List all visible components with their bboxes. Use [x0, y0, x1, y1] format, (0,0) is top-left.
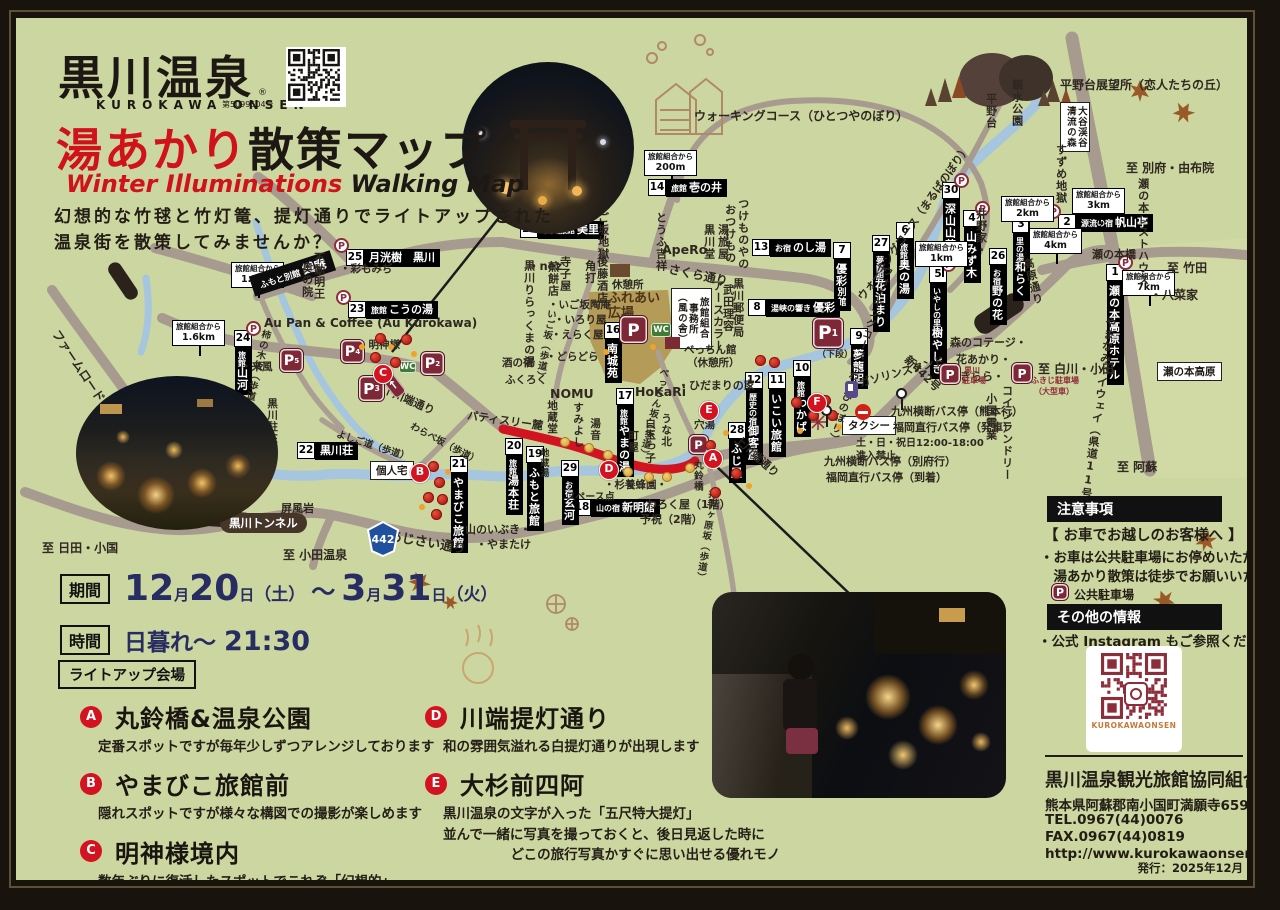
map-label: パティスリー麓: [466, 410, 543, 433]
lantern-dot: [603, 349, 609, 355]
notice-header: 注意事項: [1047, 496, 1222, 522]
divider: [1045, 755, 1243, 757]
map-label: 井野家・: [974, 208, 987, 256]
map-building-block: [610, 264, 630, 277]
notice-line-1: ・お車は公共駐車場にお停めいただけます: [1040, 546, 1280, 566]
map-label: 小国電業: [984, 393, 997, 441]
venue-name: 丸鈴橋&温泉公園: [115, 699, 312, 734]
lantern-ball-icon: [623, 467, 633, 477]
period-label: 期間: [60, 574, 110, 604]
river-lanterns-photo: [76, 376, 278, 530]
venue-desc: 隠れスポットですが様々な構図での撮影が楽しめます: [98, 804, 403, 824]
map-label: ふれあい: [608, 292, 660, 307]
time-value: 日暮れ〜 21:30: [124, 623, 310, 657]
map-label: ・やまたけ: [476, 539, 531, 552]
map-label: 至 竹田: [1167, 262, 1207, 276]
venue-desc: 定番スポットですが毎年少しずつアレンジしております: [98, 737, 403, 757]
car-visitors-header: 【 お車でお越しのお客様へ 】: [1044, 524, 1243, 545]
instagram-qr-card[interactable]: KUROKAWAONSEN: [1086, 646, 1182, 752]
distance-sign: 旅館組合から3km: [1072, 188, 1125, 214]
organization-name: 黒川温泉観光旅館協同組合: [1045, 766, 1261, 792]
lantern-dot: [836, 424, 842, 430]
fax: FAX.0967(44)0819: [1045, 829, 1185, 845]
map-sign-8[interactable]: 8湯峡の響き優彩: [748, 299, 840, 317]
map-sign-13[interactable]: 13お宿のし湯: [752, 239, 831, 257]
venue-desc: 和の雰囲気溢れる白提灯通りが出現します: [443, 737, 738, 757]
map-sign-20[interactable]: 20旅館湯本荘: [505, 438, 523, 515]
poster-canvas: P1瀬の本高原ホテルP2源流の宿帆山亭P3里の湯和らくP4山みず木P5いやしの里…: [0, 0, 1280, 910]
map-label: 平野台展望所（恋人たちの丘）: [1060, 79, 1228, 93]
parking-icon[interactable]: P: [940, 364, 960, 384]
venue-badge-E: E: [425, 773, 447, 795]
map-label: （下段）: [817, 350, 853, 360]
parking-icon[interactable]: P: [620, 316, 647, 343]
other-info-header: その他の情報: [1047, 604, 1222, 630]
lantern-dot: [419, 504, 425, 510]
address: 熊本県阿蘇郡南小国町満願寺6594-3: [1045, 794, 1273, 814]
parking-circle-icon: P: [954, 173, 969, 188]
venue-badge-D: D: [425, 706, 447, 728]
venue-badge-A: A: [80, 706, 102, 728]
map-label: 森のコテージ・: [950, 337, 1027, 350]
lantern-ball-icon: [423, 492, 434, 503]
svg-text:442: 442: [372, 533, 395, 546]
parking-icon-p5[interactable]: P5: [280, 349, 303, 372]
map-label: 穴湯: [694, 419, 715, 431]
lantern-ball-icon: [685, 463, 695, 473]
map-label: おつけもの: [723, 204, 736, 264]
map-sign-21[interactable]: 21やまびこ旅館: [450, 456, 468, 553]
map-label: ・ひだまりの家: [678, 380, 755, 393]
map-label: 瀬の本レストハウス: [1136, 178, 1149, 286]
map-label: すずめ地獄: [1054, 144, 1067, 204]
venue-badge-F: F: [425, 881, 447, 903]
venue-item-F: F大看板&バス停かやぶき屋根のバス停&竹毬のライトアップで ノスタルジックみが凄…: [403, 874, 738, 910]
map-label: ファームロード: [49, 328, 107, 405]
venue-marker-e[interactable]: E: [699, 401, 719, 421]
map-label: 至 小田温泉: [283, 549, 347, 563]
lantern-ball-icon: [370, 352, 381, 363]
map-label: 花あかり・: [956, 354, 1011, 367]
brand-logo-romaji: KUROKAWA ONSEN: [96, 98, 310, 112]
distance-sign: 旅館組合から2km: [1001, 196, 1054, 222]
lantern-ball-icon: [731, 468, 742, 479]
map-label: わろく屋（1階）: [646, 499, 731, 512]
lantern-ball-icon: [375, 333, 386, 344]
route-442-shield: 442: [366, 521, 400, 557]
map-label: 観水公園: [1010, 79, 1023, 127]
venue-marker-b[interactable]: B: [410, 463, 430, 483]
lantern-ball-icon: [390, 357, 401, 368]
map-label: ・彩もみぢ: [340, 263, 393, 275]
lantern-dot: [746, 483, 752, 489]
header-qr-code: [286, 47, 346, 107]
map-sign-14[interactable]: 14旅館壱の井: [648, 179, 727, 197]
map-label: 駐車場: [962, 376, 986, 385]
venue-marker-f[interactable]: F: [807, 393, 827, 413]
map-label: （大型車）: [1034, 387, 1074, 396]
map-label: 福岡直行バス停（到着）: [826, 472, 947, 485]
map-sign-26[interactable]: 26お宿野の花: [989, 248, 1007, 325]
map-label: 後藤酒店: [595, 256, 608, 304]
map-label: 奥の院: [300, 262, 313, 298]
lantern-dot: [650, 344, 656, 350]
issue-date: 発行：2025年12月: [1090, 860, 1243, 876]
map-label: 至 別府・由布院: [1126, 162, 1214, 176]
lantern-dot: [359, 344, 365, 350]
venue-name: やまびこ旅館前: [115, 766, 290, 801]
venues-column-1: A丸鈴橋&温泉公園定番スポットですが毎年少しずつアレンジしておりますBやまびこ旅…: [58, 699, 403, 910]
venue-name: 大杉前四阿: [460, 766, 585, 801]
time-row: 時間 日暮れ〜 21:30: [60, 623, 497, 657]
period-row: 期間 12月20日（土）〜3月31日（火）: [60, 568, 497, 609]
map-sign-11[interactable]: 11いこい旅館: [768, 372, 786, 457]
lantern-ball-icon: [560, 437, 570, 447]
page-subtitle: Winter Illuminations Walking Map: [66, 170, 524, 198]
lantern-ball-icon: [431, 509, 442, 520]
venue-name: 大看板&バス停: [460, 874, 632, 909]
distance-sign: 旅館組合から1km: [915, 241, 968, 267]
lantern-dot: [723, 430, 729, 436]
map-label: 山のいぶき・: [465, 524, 531, 537]
no-entry-icon: [855, 404, 871, 420]
map-label: ApeRo: [662, 243, 707, 257]
map-label: うな北: [660, 413, 672, 448]
map-label: アースカラー: [711, 280, 724, 352]
map-label: わらべ坂（歩道）: [408, 422, 480, 467]
map-label: 角打: [583, 260, 596, 284]
map-label: 地蔵湯: [538, 448, 548, 478]
map-label: 黒川堂: [702, 224, 715, 260]
map-label: 至 日田・小国: [42, 542, 118, 556]
venue-desc: 数年ぶりに復活したスポットでこれぞ「幻想的」 ご神木の小国杉に囲まれて神聖な気分…: [98, 872, 403, 910]
map-label: 煎餅店: [546, 261, 559, 297]
venue-marker-d[interactable]: D: [599, 460, 619, 480]
lightup-venues-section: ライトアップ会場 A丸鈴橋&温泉公園定番スポットですが毎年少しずつアレンジしてお…: [58, 660, 738, 910]
lantern-ball-icon: [662, 472, 672, 482]
map-label: 平野台: [984, 93, 997, 129]
map-label: やまなみハイウェイ（県道11号）: [1077, 316, 1117, 512]
map-label: 九州横断バス停（別府行）: [824, 456, 956, 469]
map-label: ・えらく屋: [551, 329, 604, 341]
wc-icon: WC: [399, 361, 416, 373]
venues-header: ライトアップ会場: [58, 660, 196, 689]
map-label: とうふ吉祥: [654, 212, 667, 272]
distance-sign: 旅館組合から1.6km: [172, 320, 225, 346]
venue-marker-c[interactable]: C: [373, 364, 393, 384]
map-label: つけものやの: [736, 198, 749, 270]
intro-text: 幻想的な竹毬と竹灯篭、提灯通りでライトアップされた温泉街を散策してみませんか？: [54, 204, 554, 257]
road-tunnel: [105, 260, 140, 303]
qr-caption: KUROKAWAONSEN: [1086, 721, 1182, 730]
map-label: 屏風岩: [281, 503, 314, 516]
map-white-box: 瀬の本高原: [1157, 362, 1222, 381]
map-label: 予祝（2階）: [640, 514, 703, 527]
notice-line-2: 湯あかり散策は徒歩でお願いいたします: [1040, 565, 1280, 585]
parking-circle-icon: P: [336, 290, 351, 305]
venue-marker-a[interactable]: A: [703, 449, 723, 469]
map-label: 湯音: [589, 418, 601, 441]
gas-station-icon: [845, 381, 858, 398]
lantern-ball-icon: [710, 487, 721, 498]
venue-item-D: D川端提灯通り和の雰囲気溢れる白提灯通りが出現します: [403, 699, 738, 757]
map-label: ・いろり屋: [554, 314, 607, 326]
map-label: 黒川りらっくまの湯: [522, 260, 535, 368]
venue-item-B: Bやまびこ旅館前隠れスポットですが様々な構図での撮影が楽しめます: [58, 766, 403, 824]
lantern-ball-icon: [791, 397, 802, 408]
lantern-balls-night-photo: [712, 592, 1006, 798]
bus-stop-icon: [896, 388, 907, 399]
map-label: Au Pan & Coffee (Au Kurokawa): [264, 317, 477, 331]
lantern-ball-icon: [437, 494, 448, 505]
distance-sign: 旅館組合から4km: [1029, 228, 1082, 254]
phone: TEL.0967(44)0076: [1045, 812, 1183, 828]
time-label: 時間: [60, 625, 110, 655]
instagram-icon: [1124, 682, 1148, 706]
lantern-ball-icon: [584, 443, 594, 453]
map-label: ・どらどら: [546, 351, 599, 363]
map-label: スペース点: [566, 492, 615, 504]
lantern-ball-icon: [755, 355, 766, 366]
parking-icon-p1[interactable]: P1: [813, 318, 843, 348]
schedule-section: 期間 12月20日（土）〜3月31日（火） 時間 日暮れ〜 21:30: [60, 568, 497, 671]
lantern-dot: [445, 469, 451, 475]
map-label: コインランドリー: [1000, 385, 1013, 481]
lantern-ball-icon: [434, 477, 445, 488]
venue-item-E: E大杉前四阿黒川温泉の文字が入った「五尺特大提灯」 並んで一緒に写真を撮っておく…: [403, 766, 738, 865]
parking-icon-p2[interactable]: P2: [421, 352, 444, 375]
venue-item-A: A丸鈴橋&温泉公園定番スポットですが毎年少しずつアレンジしております: [58, 699, 403, 757]
registered-mark: ®: [258, 88, 267, 98]
map-label: 地蔵堂: [546, 400, 558, 435]
distance-sign: 旅館組合から200m: [644, 150, 697, 176]
venue-desc: 黒川温泉の文字が入った「五尺特大提灯」 並んで一緒に写真を撮っておくと、後日見返…: [443, 804, 738, 865]
parking-icon[interactable]: P: [1012, 363, 1032, 383]
map-label: 瀬の本橋: [1092, 249, 1136, 262]
venue-item-C: C明神様境内数年ぶりに復活したスポットでこれぞ「幻想的」 ご神木の小国杉に囲まれ…: [58, 834, 403, 910]
lantern-ball-icon: [401, 334, 412, 345]
map-label: 至 阿蘇: [1117, 461, 1157, 475]
lantern-dot: [797, 428, 803, 434]
map-label: （休憩所）: [687, 357, 740, 369]
venue-name: 川端提灯通り: [460, 699, 610, 734]
map-building-block: [665, 337, 680, 349]
map-label: ・八菜家: [1150, 289, 1198, 303]
period-value: 12月20日（土）〜3月31日（火）: [124, 568, 497, 609]
map-label: 黒川: [964, 366, 980, 375]
wc-icon: WC: [651, 323, 671, 337]
lantern-ball-icon: [769, 357, 780, 368]
lantern-ball-icon: [603, 450, 613, 460]
lantern-dot: [388, 344, 394, 350]
map-label: 休憩所: [612, 279, 644, 291]
map-label: ふきじ駐車場: [1031, 376, 1079, 385]
trademark-number: 第5099504号: [222, 99, 274, 110]
public-parking-label: 公共駐車場: [1074, 586, 1134, 603]
map-label: ・杉養蜂園・: [604, 479, 667, 491]
map-label: すみよし: [572, 402, 584, 448]
map-label: 土・日・祝日12:00-18:00: [856, 438, 984, 450]
map-label: ウォーキングコース（ひとつやのぼり）: [694, 110, 908, 124]
lantern-dot: [411, 351, 417, 357]
public-parking-icon: P: [1052, 584, 1068, 600]
venue-name: 明神様境内: [115, 834, 240, 869]
venues-column-2: D川端提灯通り和の雰囲気溢れる白提灯通りが出現しますE大杉前四阿黒川温泉の文字が…: [403, 699, 738, 910]
map-white-box: タクシー: [842, 416, 896, 435]
map-white-box: 個人宅: [370, 461, 414, 480]
venue-badge-B: B: [80, 773, 102, 795]
lantern-ball-icon: [644, 472, 654, 482]
venue-badge-C: C: [80, 840, 102, 862]
